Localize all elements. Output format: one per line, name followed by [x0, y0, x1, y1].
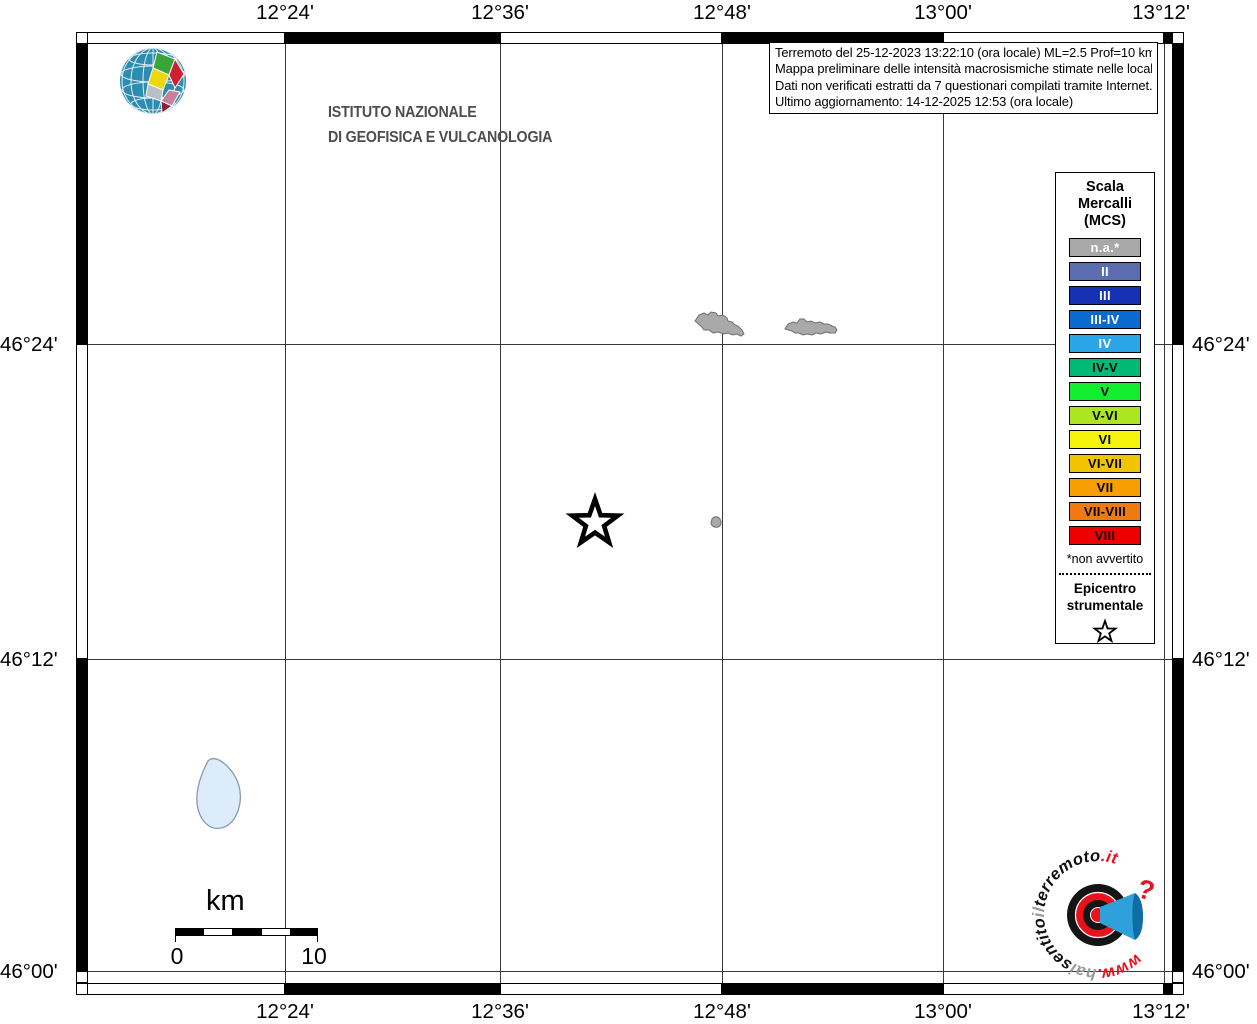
legend-separator: [1059, 573, 1151, 575]
axis-label-top-2: 12°48': [693, 1, 751, 25]
mercalli-legend: Scala Mercalli (MCS) n.a.* II III III-IV…: [1055, 172, 1155, 644]
legend-epicenter-label-line1: Epicentro: [1056, 581, 1154, 598]
map-scale-bar: km 0 10: [150, 885, 350, 975]
ingv-globe-icon: [100, 42, 205, 118]
legend-item-iv-v: IV-V: [1069, 358, 1141, 377]
gridline-lat-46-12: [88, 659, 1172, 660]
axis-label-top-3: 13°00': [914, 1, 972, 25]
legend-item-v-vi: V-VI: [1069, 406, 1141, 425]
legend-epicenter-star-icon: [1090, 618, 1120, 646]
gridline-lat-46-24: [88, 344, 1172, 345]
scale-bar-tick-end: [317, 928, 318, 942]
legend-footnote: *non avvertito: [1056, 552, 1154, 566]
gridline-lon-12-48: [722, 44, 723, 983]
frame-band-right: [1172, 44, 1184, 983]
info-line-map: Mappa preliminare delle intensità macros…: [775, 61, 1152, 77]
axis-label-left-0: 46°24': [0, 333, 66, 357]
scale-bar-tick-start: [175, 928, 176, 942]
legend-item-viii: VIII: [1069, 526, 1141, 545]
gridline-lon-13-00: [943, 44, 944, 983]
ingv-institute-name: ISTITUTO NAZIONALE DI GEOFISICA E VULCAN…: [328, 100, 552, 150]
axis-label-bottom-1: 12°36': [471, 1000, 529, 1024]
locality-blob-small: [711, 517, 721, 528]
legend-item-vii-viii: VII-VIII: [1069, 502, 1141, 521]
scale-bar-end-label: 10: [301, 943, 327, 970]
watermark-logo: www.haisentitoilterremoto.it ?: [1030, 847, 1158, 983]
legend-item-ii: II: [1069, 262, 1141, 281]
legend-item-vi: VI: [1069, 430, 1141, 449]
legend-item-na: n.a.*: [1069, 238, 1141, 257]
axis-label-top-0: 12°24': [256, 1, 314, 25]
axis-label-top-4: 13°12': [1132, 1, 1190, 25]
locality-blob-west: [695, 312, 744, 336]
locality-blob-east: [785, 319, 837, 335]
axis-label-left-2: 46°00': [0, 960, 66, 984]
map-page: 12°24' 12°36' 12°48' 13°00' 13°12' 12°24…: [0, 0, 1257, 1024]
scale-bar-unit: km: [206, 885, 245, 918]
legend-item-v: V: [1069, 382, 1141, 401]
epicenter-star: [572, 499, 618, 542]
axis-label-top-1: 12°36': [471, 1, 529, 25]
legend-item-vii: VII: [1069, 478, 1141, 497]
axis-label-bottom-0: 12°24': [256, 1000, 314, 1024]
legend-item-vi-vii: VI-VII: [1069, 454, 1141, 473]
axis-label-right-2: 46°00': [1192, 960, 1250, 984]
info-line-updated: Ultimo aggiornamento: 14-12-2025 12:53 (…: [775, 94, 1152, 110]
scale-bar-segments: [175, 928, 318, 936]
scale-bar-start-label: 0: [171, 943, 184, 970]
ingv-logo: ISTITUTO NAZIONALE DI GEOFISICA E VULCAN…: [100, 42, 520, 118]
info-line-event: Terremoto del 25-12-2023 13:22:10 (ora l…: [775, 45, 1152, 61]
legend-item-iii-iv: III-IV: [1069, 310, 1141, 329]
frame-band-left: [76, 44, 88, 983]
legend-title-line2: Mercalli: [1056, 196, 1154, 213]
gridline-lon-12-36: [500, 44, 501, 983]
axis-label-left-1: 46°12': [0, 648, 66, 672]
gridline-lon-13-12: [1164, 44, 1165, 983]
gridline-lon-12-24: [285, 44, 286, 983]
earthquake-info-box: Terremoto del 25-12-2023 13:22:10 (ora l…: [769, 42, 1158, 114]
axis-label-bottom-2: 12°48': [693, 1000, 751, 1024]
info-line-data: Dati non verificati estratti da 7 questi…: [775, 78, 1152, 94]
watermark-question-mark: ?: [1134, 873, 1157, 906]
legend-title-line1: Scala: [1056, 179, 1154, 196]
lake-shape: [197, 759, 241, 829]
axis-label-right-0: 46°24': [1192, 333, 1250, 357]
frame-band-bottom: [76, 983, 1184, 995]
legend-epicenter-label-line2: strumentale: [1056, 598, 1154, 615]
legend-item-iv: IV: [1069, 334, 1141, 353]
target-outer-ring: [1067, 884, 1129, 946]
megaphone-icon: [1100, 893, 1138, 940]
axis-label-right-1: 46°12': [1192, 648, 1250, 672]
axis-label-bottom-3: 13°00': [914, 1000, 972, 1024]
legend-title-line3: (MCS): [1056, 213, 1154, 230]
axis-label-bottom-4: 13°12': [1132, 1000, 1190, 1024]
watermark-curved-text: www.haisentitoilterremoto.it: [1030, 847, 1145, 983]
legend-item-iii: III: [1069, 286, 1141, 305]
